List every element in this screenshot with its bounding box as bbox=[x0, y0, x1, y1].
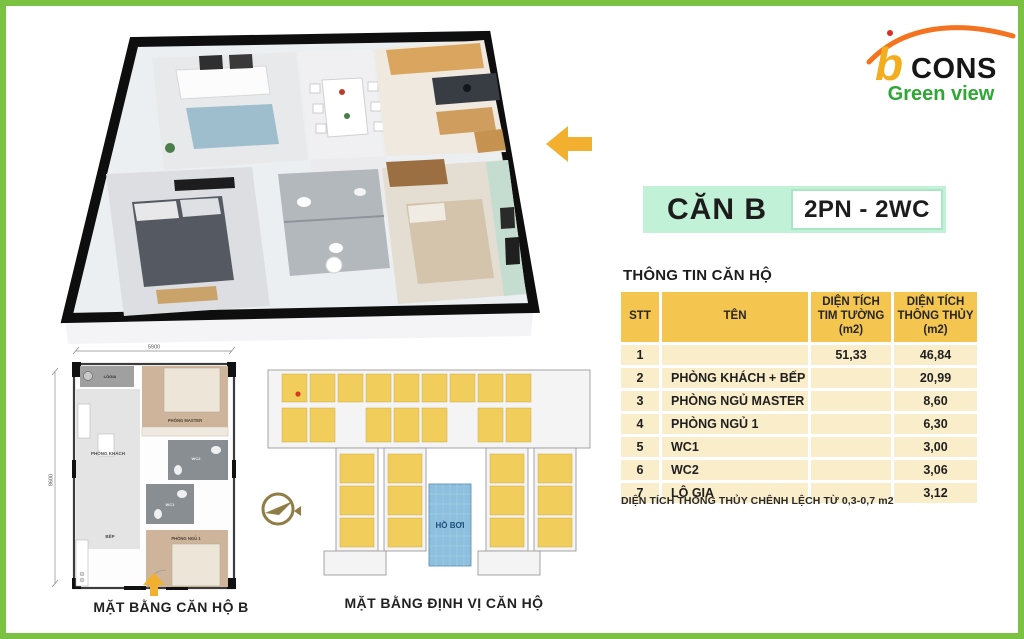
table-cell: PHÒNG KHÁCH + BẾP bbox=[662, 368, 808, 388]
table-cell bbox=[811, 460, 891, 480]
table-note: DIỆN TÍCH THÔNG THỦY CHÊNH LỆCH TỪ 0,3-0… bbox=[621, 495, 894, 507]
room-label-logia: LÔGIA bbox=[104, 374, 117, 379]
unit-plan-caption: MẶT BẰNG CĂN HỘ B bbox=[61, 599, 281, 615]
room-living: PHÒNG KHÁCH bbox=[76, 389, 140, 549]
table-cell: 3,00 bbox=[894, 437, 977, 457]
render-master-bedroom bbox=[106, 167, 270, 316]
render-bedroom-1 bbox=[382, 159, 526, 304]
unit-spec-badge: 2PN - 2WC bbox=[791, 189, 943, 230]
unit-cells bbox=[282, 374, 572, 547]
room-wc1: WC1 bbox=[146, 484, 194, 524]
unit-title-band: CĂN B 2PN - 2WC bbox=[643, 186, 946, 233]
table-cell: PHÒNG NGỦ 1 bbox=[662, 414, 808, 434]
table-cell: 5 bbox=[621, 437, 659, 457]
table-cell bbox=[811, 414, 891, 434]
room-label-bedroom1: PHÒNG NGỦ 1 bbox=[171, 536, 201, 541]
table-cell: 3,06 bbox=[894, 460, 977, 480]
room-master: PHÒNG MASTER bbox=[142, 366, 228, 436]
unit-b-marker bbox=[295, 391, 300, 396]
table-cell: 46,84 bbox=[894, 345, 977, 365]
table-cell bbox=[662, 345, 808, 365]
logo-subtitle: Green view bbox=[888, 83, 995, 105]
render-kitchen bbox=[374, 40, 506, 156]
dim-width-label: 5900 bbox=[148, 345, 160, 351]
table-cell: 3,12 bbox=[894, 483, 977, 503]
room-label-wc1: WC1 bbox=[166, 502, 176, 507]
table-cell: 6,30 bbox=[894, 414, 977, 434]
room-label-wc2: WC2 bbox=[192, 456, 202, 461]
table-cell: 51,33 bbox=[811, 345, 891, 365]
col-header-stt: STT bbox=[621, 292, 659, 342]
unit-info-table: STT TÊN DIỆN TÍCH TIM TƯỜNG (m2) DIỆN TÍ… bbox=[621, 292, 977, 503]
brand-logo: b CONS Green view bbox=[861, 18, 1021, 106]
unit-title: CĂN B bbox=[643, 193, 791, 227]
room-wc2: WC2 bbox=[168, 440, 228, 480]
logo-red-dot bbox=[887, 30, 893, 36]
table-cell: 20,99 bbox=[894, 368, 977, 388]
col-header-thong-thuy: DIỆN TÍCH THÔNG THỦY (m2) bbox=[894, 292, 977, 342]
site-plan: HỒ BƠI bbox=[248, 358, 606, 590]
table-cell: PHÒNG NGỦ MASTER bbox=[662, 391, 808, 411]
table-cell: 8,60 bbox=[894, 391, 977, 411]
compass-icon bbox=[263, 494, 301, 524]
col-header-ten: TÊN bbox=[662, 292, 808, 342]
table-cell: 3 bbox=[621, 391, 659, 411]
table-cell: WC1 bbox=[662, 437, 808, 457]
room-logia: LÔGIA bbox=[80, 366, 134, 387]
logo-cons: CONS bbox=[911, 53, 997, 85]
render-dining-area bbox=[298, 49, 384, 160]
col-header-tim-tuong: DIỆN TÍCH TIM TƯỜNG (m2) bbox=[811, 292, 891, 342]
table-cell bbox=[811, 437, 891, 457]
table-cell bbox=[811, 391, 891, 411]
unit-floorplan-2d: 5900 8600 LÔGIA PHÒNG MASTER bbox=[46, 342, 246, 598]
flyer-page: b CONS Green view CĂN B 2PN - 2WC THÔNG … bbox=[0, 0, 1024, 639]
table-cell: 2 bbox=[621, 368, 659, 388]
render-living-room bbox=[152, 52, 308, 170]
room-label-kitchen: BẾP bbox=[105, 533, 114, 539]
pool: HỒ BƠI bbox=[429, 484, 471, 566]
table-cell bbox=[811, 368, 891, 388]
apartment-3d-render bbox=[34, 12, 599, 352]
info-section-title: THÔNG TIN CĂN HỘ bbox=[623, 267, 772, 284]
pool-label: HỒ BƠI bbox=[435, 520, 464, 530]
render-bathrooms bbox=[278, 169, 390, 276]
room-label-living: PHÒNG KHÁCH bbox=[91, 449, 125, 456]
dim-height-label: 8600 bbox=[49, 474, 55, 486]
table-cell: 1 bbox=[621, 345, 659, 365]
entrance-arrow-icon bbox=[546, 126, 592, 162]
room-label-master: PHÒNG MASTER bbox=[168, 418, 202, 423]
table-cell: WC2 bbox=[662, 460, 808, 480]
table-cell: 4 bbox=[621, 414, 659, 434]
site-plan-caption: MẶT BẰNG ĐỊNH VỊ CĂN HỘ bbox=[304, 595, 584, 611]
table-cell: 6 bbox=[621, 460, 659, 480]
